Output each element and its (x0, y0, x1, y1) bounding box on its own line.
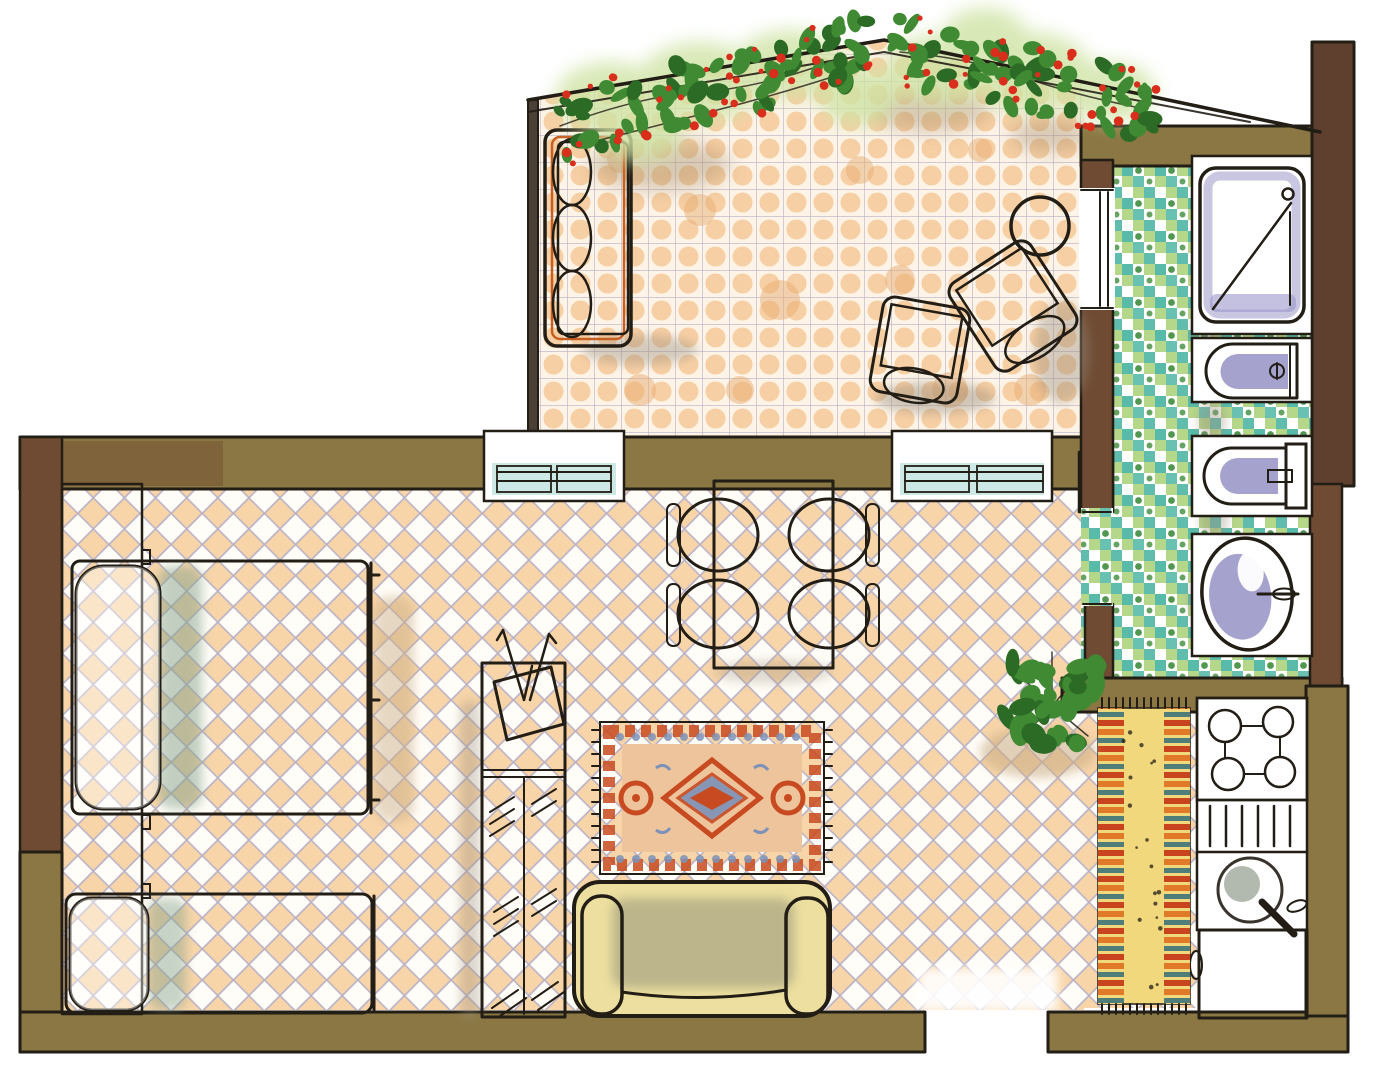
floor-plan-drawing (0, 0, 1375, 1071)
sofa-seat-shade (612, 898, 794, 988)
right-wall-bottom (1306, 686, 1348, 1016)
bidet (1192, 338, 1312, 402)
entry-threshold-fade (918, 968, 1058, 1012)
sofa (574, 882, 830, 1016)
runner-rug (1098, 698, 1190, 1014)
bathroom-room-door (1081, 508, 1113, 606)
toilet (1192, 436, 1312, 516)
wall-left-upper (20, 437, 62, 855)
terrace-window-left (484, 431, 624, 501)
washbasin (1192, 534, 1312, 656)
bathroom-left-wall-upper (1081, 160, 1113, 190)
studio-floor (58, 487, 1084, 1010)
terrace-left-wall (528, 100, 538, 439)
double-bed-pillow (76, 566, 160, 809)
armchair-shadow-1 (875, 382, 995, 414)
terrace-window-right (892, 431, 1052, 501)
floor-plan-canvas (0, 0, 1375, 1071)
bed-side-shadow (374, 596, 414, 822)
area-rug (592, 722, 832, 874)
blue-counter (1190, 930, 1307, 1018)
right-wall-mid (1310, 484, 1342, 686)
single-bed-pillow (70, 898, 148, 1010)
right-wall-top (1312, 42, 1354, 486)
single-bed-shadow-band (148, 898, 186, 1010)
kitchen-nook (1098, 698, 1308, 1018)
table-shadow (713, 660, 833, 684)
bathroom-terrace-door (1079, 188, 1115, 310)
shower-tray (1192, 156, 1312, 334)
wardrobe-side-shadow (460, 700, 480, 1020)
armchair-shadow-2 (1034, 300, 1090, 404)
double-bed-shadow-band (158, 566, 202, 809)
